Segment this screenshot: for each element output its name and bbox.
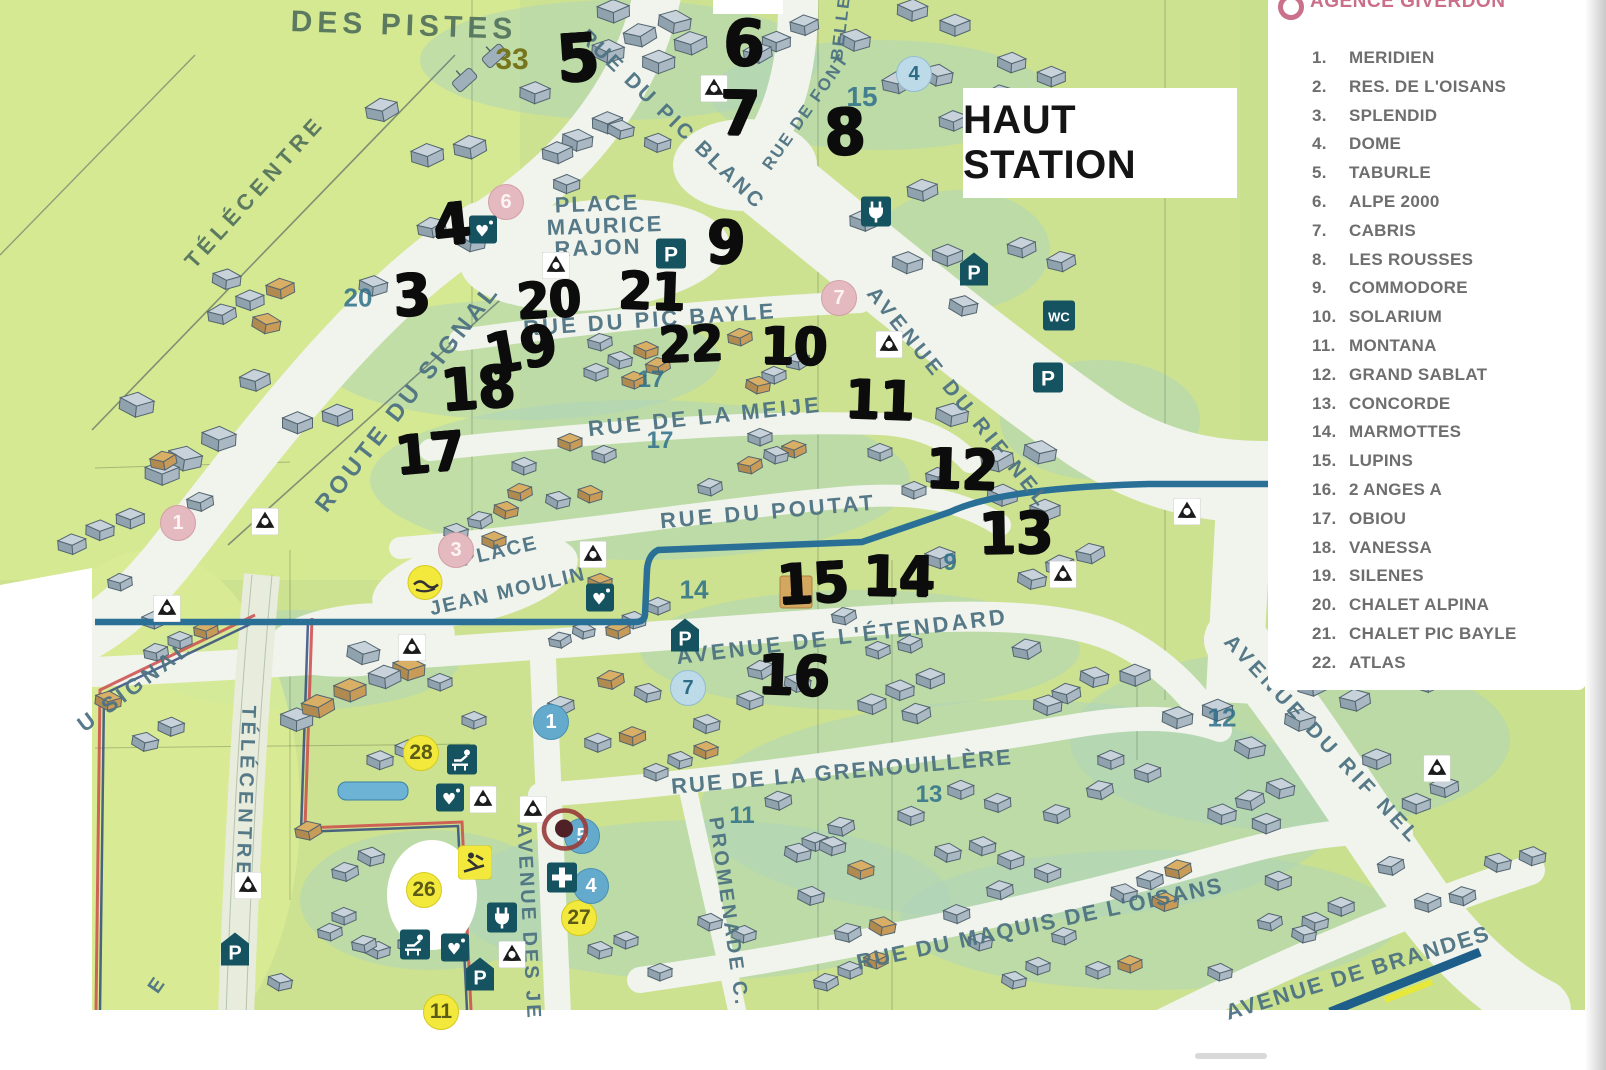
legend-item-number: 13. [1312, 390, 1349, 419]
legend-panel: AGENCE GIVERDON 1.MERIDIEN2.RES. DE L'OI… [1268, 0, 1586, 690]
legend-item-number: 15. [1312, 447, 1349, 476]
legend-item-les-rousses: 8.LES ROUSSES [1312, 246, 1586, 275]
legend-item-solarium: 10.SOLARIUM [1312, 303, 1586, 332]
map-title-box: HAUT STATION [963, 88, 1237, 198]
legend-item-number: 5. [1312, 159, 1349, 188]
legend-item-chalet-pic-bayle: 21.CHALET PIC BAYLE [1312, 620, 1586, 649]
legend-item-marmottes: 14.MARMOTTES [1312, 418, 1586, 447]
legend-item-lupins: 15.LUPINS [1312, 447, 1586, 476]
legend-item-name: ALPE 2000 [1349, 188, 1440, 217]
legend-item-number: 9. [1312, 274, 1349, 303]
legend-item-name: RES. DE L'OISANS [1349, 73, 1506, 102]
scan-smudge-artifact [1195, 1053, 1267, 1059]
legend-item-number: 10. [1312, 303, 1349, 332]
legend-item-number: 2. [1312, 73, 1349, 102]
legend-item-meridien: 1.MERIDIEN [1312, 44, 1586, 73]
legend-item-name: ATLAS [1349, 649, 1406, 678]
legend-item-name: SPLENDID [1349, 102, 1437, 131]
legend-item-name: MERIDIEN [1349, 44, 1435, 73]
legend-item-chalet-alpina: 20.CHALET ALPINA [1312, 591, 1586, 620]
legend-item-number: 17. [1312, 505, 1349, 534]
legend-item-splendid: 3.SPLENDID [1312, 102, 1586, 131]
legend-item-name: SILENES [1349, 562, 1424, 591]
legend-item-alpe-2000: 6.ALPE 2000 [1312, 188, 1586, 217]
legend-item-number: 14. [1312, 418, 1349, 447]
legend-item-commodore: 9.COMMODORE [1312, 274, 1586, 303]
legend-item-number: 4. [1312, 130, 1349, 159]
legend-item-name: OBIOU [1349, 505, 1406, 534]
legend-item-name: SOLARIUM [1349, 303, 1442, 332]
legend-item-number: 21. [1312, 620, 1349, 649]
legend-item-name: CHALET ALPINA [1349, 591, 1489, 620]
legend-item-number: 8. [1312, 246, 1349, 275]
legend-item-concorde: 13.CONCORDE [1312, 390, 1586, 419]
legend-item-name: VANESSA [1349, 534, 1432, 563]
legend-item-name: CONCORDE [1349, 390, 1451, 419]
legend-item-grand-sablat: 12.GRAND SABLAT [1312, 361, 1586, 390]
resort-map-page: DES PISTESTÉLÉCENTRERUE DU PIC BLANCRUE … [0, 0, 1606, 1070]
legend-item-name: LES ROUSSES [1349, 246, 1473, 275]
legend-item-dome: 4.DOME [1312, 130, 1586, 159]
agency-name: AGENCE GIVERDON [1310, 0, 1505, 13]
legend-item-name: CABRIS [1349, 217, 1416, 246]
legend-item-obiou: 17.OBIOU [1312, 505, 1586, 534]
legend-item-cabris: 7.CABRIS [1312, 217, 1586, 246]
legend-item-number: 11. [1312, 332, 1349, 361]
legend-item-number: 22. [1312, 649, 1349, 678]
legend-item-number: 20. [1312, 591, 1349, 620]
legend-list: 1.MERIDIEN2.RES. DE L'OISANS3.SPLENDID4.… [1268, 0, 1586, 678]
legend-item-name: CHALET PIC BAYLE [1349, 620, 1517, 649]
legend-item-number: 7. [1312, 217, 1349, 246]
legend-item-number: 12. [1312, 361, 1349, 390]
legend-item-name: COMMODORE [1349, 274, 1468, 303]
legend-item-number: 3. [1312, 102, 1349, 131]
legend-item-name: DOME [1349, 130, 1401, 159]
legend-item-vanessa: 18.VANESSA [1312, 534, 1586, 563]
legend-item-number: 16. [1312, 476, 1349, 505]
legend-item-number: 6. [1312, 188, 1349, 217]
legend-item-res-de-l-oisans: 2.RES. DE L'OISANS [1312, 73, 1586, 102]
legend-item-taburle: 5.TABURLE [1312, 159, 1586, 188]
legend-item-number: 19. [1312, 562, 1349, 591]
legend-item-number: 1. [1312, 44, 1349, 73]
legend-item-name: TABURLE [1349, 159, 1431, 188]
legend-item-2-anges-a: 16.2 ANGES A [1312, 476, 1586, 505]
legend-item-name: MARMOTTES [1349, 418, 1461, 447]
legend-item-name: LUPINS [1349, 447, 1413, 476]
scan-edge-artifact [1585, 0, 1606, 1070]
legend-item-number: 18. [1312, 534, 1349, 563]
legend-item-silenes: 19.SILENES [1312, 562, 1586, 591]
legend-item-montana: 11.MONTANA [1312, 332, 1586, 361]
legend-item-name: GRAND SABLAT [1349, 361, 1487, 390]
legend-item-name: 2 ANGES A [1349, 476, 1442, 505]
legend-item-atlas: 22.ATLAS [1312, 649, 1586, 678]
legend-item-name: MONTANA [1349, 332, 1437, 361]
map-title: HAUT STATION [963, 98, 1237, 188]
